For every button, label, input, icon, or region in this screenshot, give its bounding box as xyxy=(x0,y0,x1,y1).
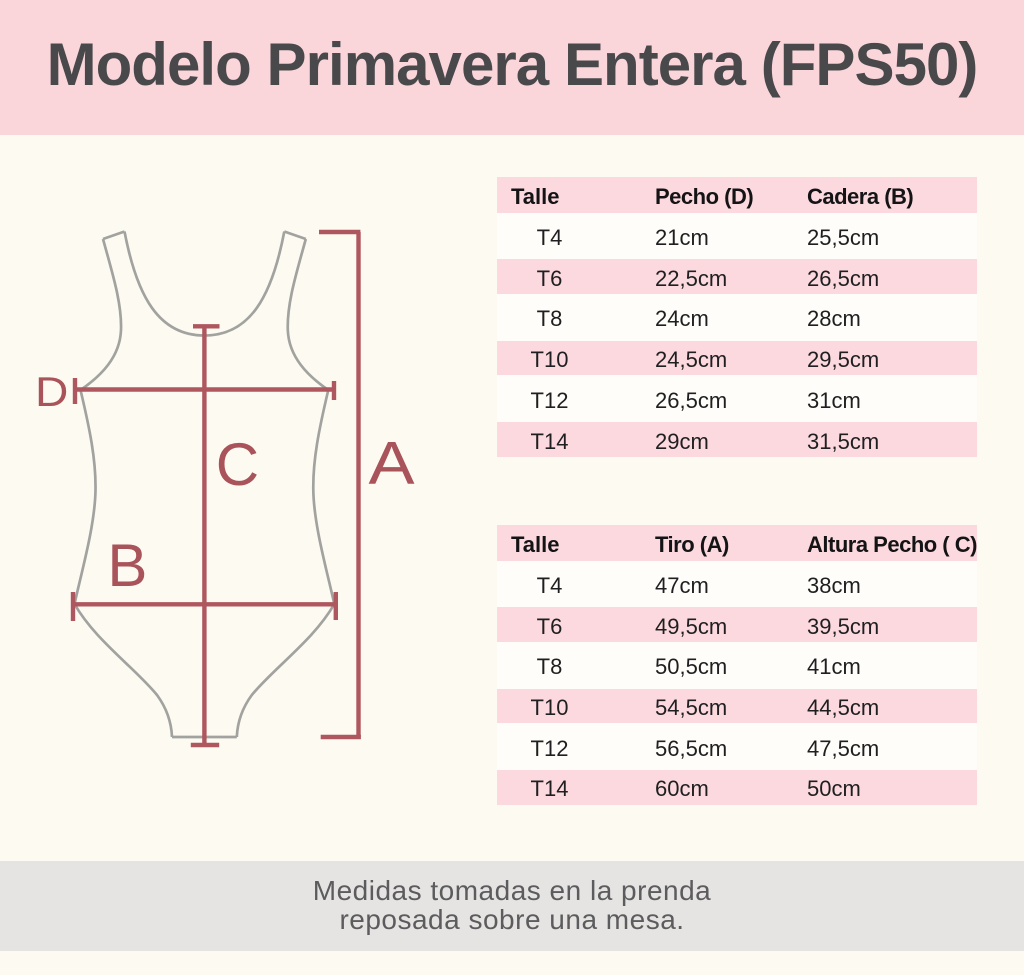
svg-text:C: C xyxy=(216,431,259,498)
svg-text:A: A xyxy=(369,429,415,497)
svg-text:B: B xyxy=(107,532,147,599)
svg-text:D: D xyxy=(35,369,68,416)
